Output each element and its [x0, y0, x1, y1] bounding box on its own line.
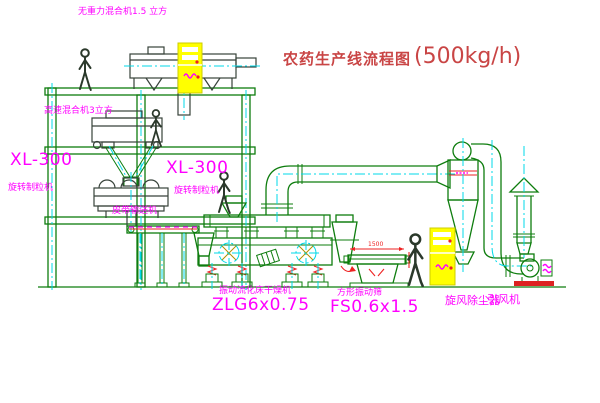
fluid-bed-dryer — [198, 215, 359, 289]
label-granulator-right-model: XL-300 — [166, 160, 228, 177]
label-granulator-left-model: XL-300 — [10, 152, 72, 169]
vibrating-screen — [344, 247, 410, 287]
label-fan: 引风机 — [487, 294, 520, 305]
exhaust-stack — [510, 146, 538, 258]
flow-diagram-canvas: 无重力混合机1.5 立方 农药生产线流程图 (500kg/h) 高速混合机3立方… — [0, 0, 600, 403]
label-top-mixer: 无重力混合机1.5 立方 — [78, 8, 167, 17]
label-belt-conveyor: 皮带输送机 — [112, 207, 157, 216]
person-figure — [408, 235, 422, 286]
page-title: 农药生产线流程图 (500kg/h) — [283, 44, 521, 69]
floor2-mixer — [92, 111, 162, 186]
title-text: 农药生产线流程图 — [283, 48, 411, 69]
title-capacity: (500kg/h) — [414, 44, 521, 69]
label-screen-dimension: 1500 — [368, 242, 383, 248]
induced-draft-fan — [514, 254, 554, 286]
label-granulator-left-name: 旋转制粒机 — [8, 184, 53, 193]
person-figure — [80, 49, 91, 90]
control-cabinet-upper — [178, 43, 202, 93]
person-figure — [151, 110, 161, 146]
label-screen-model: FS0.6x1.5 — [330, 299, 419, 316]
label-dryer-model: ZLG6x0.75 — [212, 297, 310, 314]
rotary-granulator — [94, 172, 168, 232]
label-granulator-right-name: 旋转制粒机 — [174, 187, 219, 196]
exhaust-duct — [261, 164, 455, 222]
control-cabinet-lower — [430, 228, 455, 285]
label-floor2-mixer: 高速混合机3立方 — [44, 107, 113, 116]
belt-conveyor — [127, 226, 214, 287]
cyclone-outlet-duct — [471, 140, 532, 277]
